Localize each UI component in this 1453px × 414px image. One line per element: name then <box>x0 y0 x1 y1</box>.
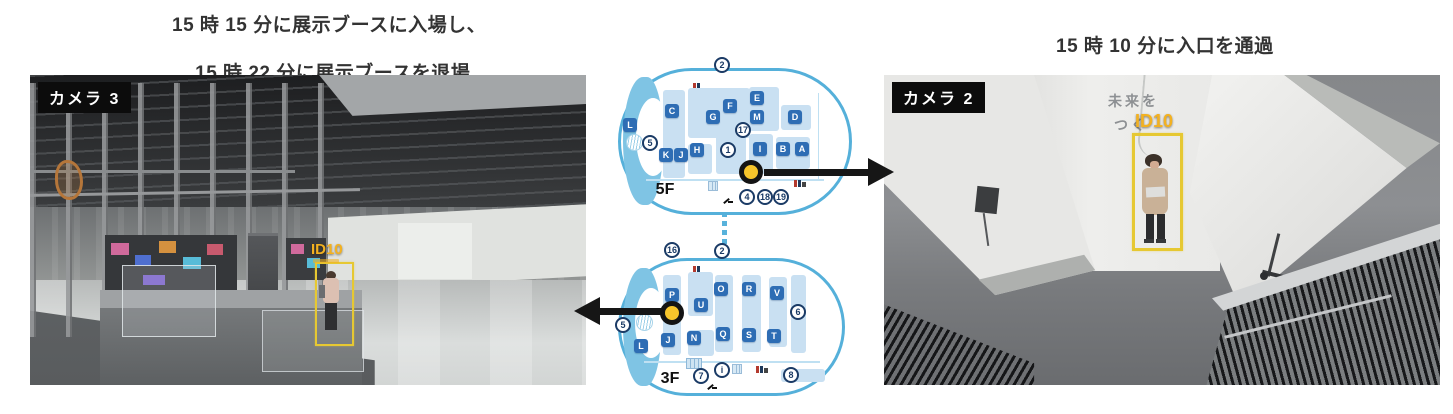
geo-cosmos-icon <box>626 134 643 151</box>
arrow-to-camera2 <box>764 158 894 186</box>
booth-tile-F: F <box>723 99 737 113</box>
map-point-6: 6 <box>790 304 806 320</box>
tracking-overview: 15 時 15 分に展示ブースに入場し、 15 時 22 分に展示ブースを退場 … <box>0 0 1453 414</box>
booth-tile-A: A <box>795 142 809 156</box>
c3-orange-sculpture <box>55 160 83 200</box>
map-point-17: 17 <box>735 122 751 138</box>
camera2-name-badge: カメラ 2 <box>892 82 985 113</box>
elevator-icon <box>732 364 742 374</box>
booth-tile-S: S <box>742 328 756 342</box>
tracking-bbox-camera2 <box>1132 133 1183 251</box>
booth-tile-E: E <box>750 91 764 105</box>
booth-tile-R: R <box>742 282 756 296</box>
booth-tile-U: U <box>694 298 708 312</box>
screen-content <box>207 244 223 255</box>
booth-tile-J: J <box>661 333 675 347</box>
arrow-head-right-icon <box>868 158 894 186</box>
track-sublabel-camera3 <box>313 259 339 263</box>
map-point-1: 1 <box>720 142 736 158</box>
floor-label-3f: 3F <box>661 370 680 388</box>
map-point-8: 8 <box>783 367 799 383</box>
booth-tile-V: V <box>770 286 784 300</box>
booth-tile-O: O <box>714 282 728 296</box>
position-marker-3f <box>660 301 684 325</box>
screen-content <box>111 243 129 255</box>
position-marker-5f <box>739 160 763 184</box>
map-point-i: i <box>714 362 730 378</box>
c3-glass-case <box>122 265 216 337</box>
wall-text-line1: 未来を <box>1108 91 1159 111</box>
camera3-name-badge: カメラ 3 <box>38 82 131 113</box>
booth-tile-L: L <box>634 339 648 353</box>
booth-tile-J: J <box>674 148 688 162</box>
booth-tile-C: C <box>665 104 679 118</box>
caption-camera2: 15 時 10 分に入口を通過 <box>1056 35 1274 59</box>
caption-camera3-line1: 15 時 15 分に展示ブースに入場し、 <box>172 15 486 36</box>
escalator-icon <box>707 380 718 390</box>
floor-label-5f: 5F <box>656 181 675 199</box>
c2-cart-wheel <box>1260 272 1268 280</box>
escalator-icon <box>723 194 734 204</box>
booth-tile-B: B <box>776 142 790 156</box>
c2-floor-sign <box>975 186 1000 214</box>
tracking-bbox-camera3 <box>315 262 354 346</box>
screen-content <box>159 241 176 253</box>
camera2-viewport: 未来を つく ID10 カメラ 2 <box>884 75 1440 385</box>
floor-map-3f: 3F PORVULJNQST162657i8 <box>618 258 845 396</box>
floor-map-5f: 5F LCGFEMDKJHIBA2171541819 <box>618 68 852 215</box>
c3-exhibit-wall-2 <box>398 223 472 279</box>
booth-tile-D: D <box>788 110 802 124</box>
map-point-7: 7 <box>693 368 709 384</box>
camera3-viewport: ID10 カメラ 3 <box>30 75 586 385</box>
arrow-shaft <box>764 169 870 176</box>
arrow-head-left-icon <box>574 297 600 325</box>
elevator-icon <box>708 181 718 191</box>
booth-tile-I: I <box>753 142 767 156</box>
map-point-2: 2 <box>714 57 730 73</box>
map-point-19: 19 <box>773 189 789 205</box>
booth-tile-M: M <box>750 110 764 124</box>
map-point-2: 2 <box>714 243 730 259</box>
booth-tile-L: L <box>623 118 637 132</box>
screen-content <box>291 244 304 254</box>
map-point-16: 16 <box>664 242 680 258</box>
track-id-label-camera3: ID10 <box>311 241 343 258</box>
restroom-icon <box>756 366 768 373</box>
track-id-label-camera2: ID10 <box>1135 111 1173 132</box>
booth-tile-K: K <box>659 148 673 162</box>
map-point-4: 4 <box>739 189 755 205</box>
booth-tile-N: N <box>687 331 701 345</box>
map-point-5: 5 <box>642 135 658 151</box>
booth-tile-Q: Q <box>716 327 730 341</box>
booth-tile-T: T <box>767 329 781 343</box>
booth-tile-G: G <box>706 110 720 124</box>
map-point-18: 18 <box>757 189 773 205</box>
map3f-walkway-line <box>644 361 820 363</box>
booth-tile-H: H <box>690 143 704 157</box>
